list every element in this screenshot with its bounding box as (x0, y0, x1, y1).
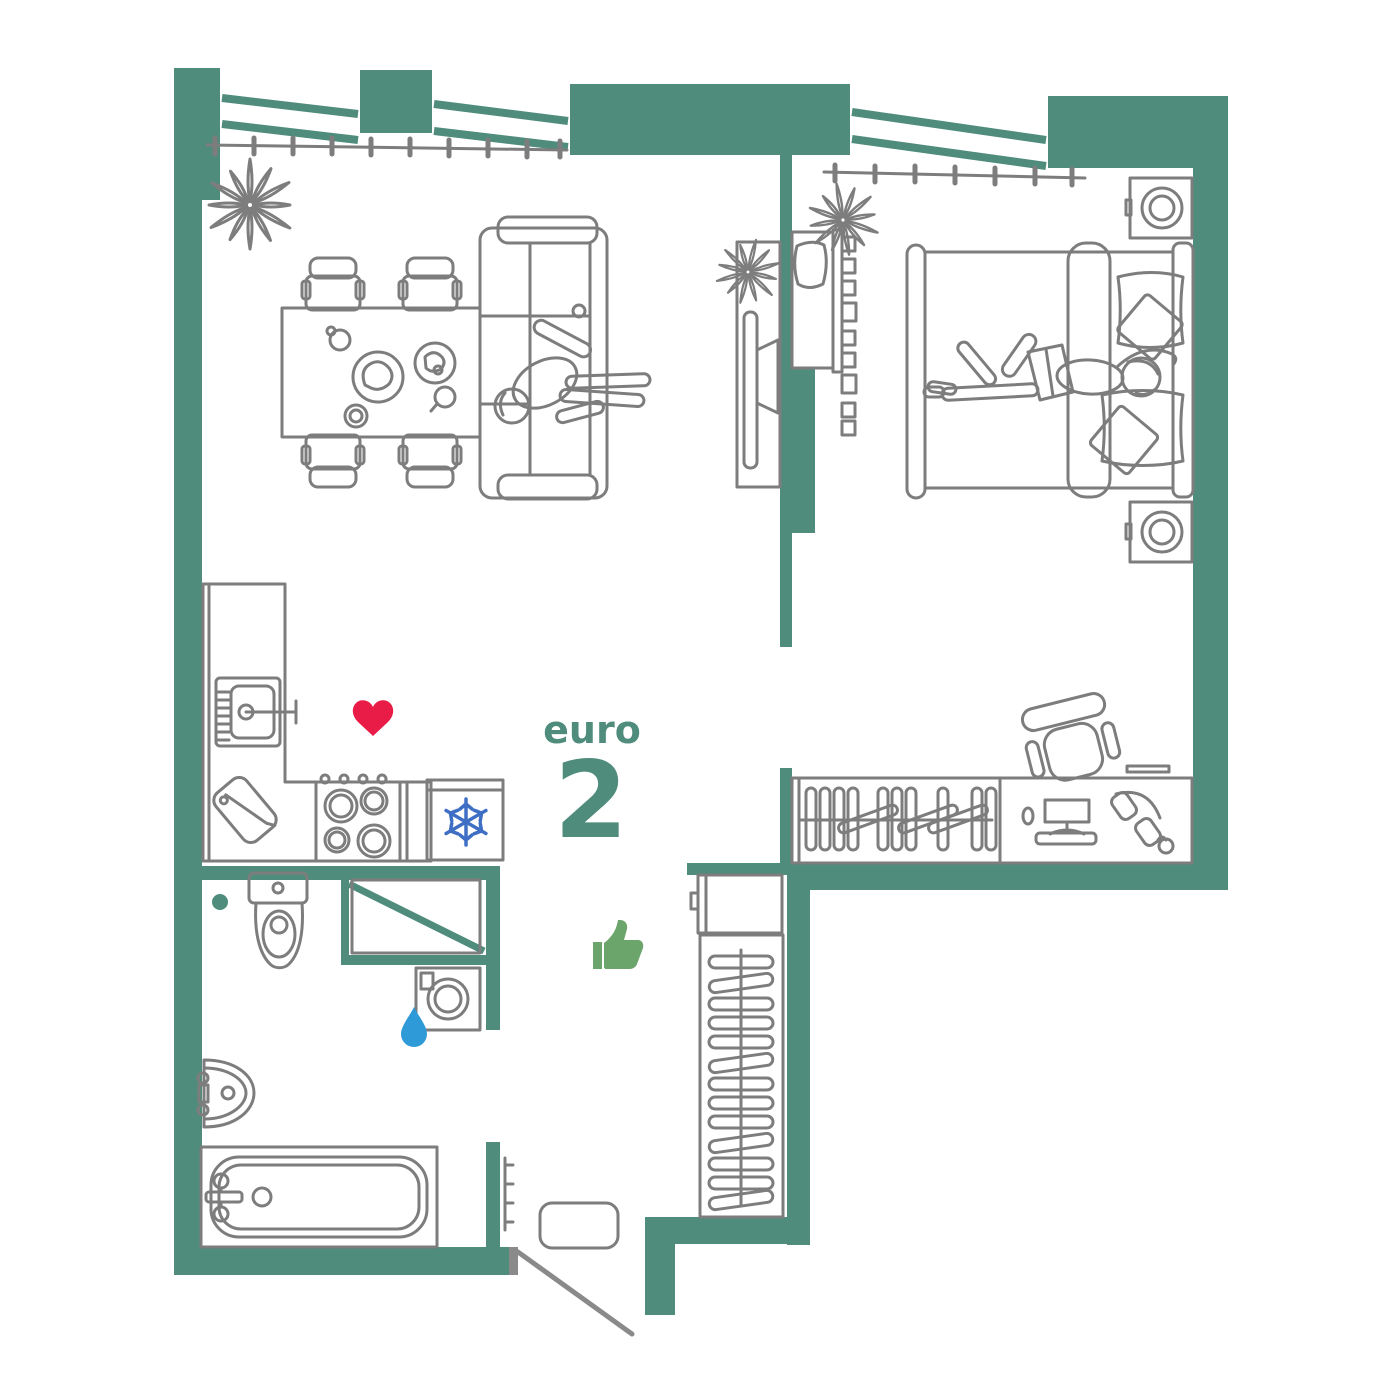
floor-drain-dot (212, 894, 228, 910)
apartment-floorplan: euro 2 (0, 0, 1400, 1400)
wall-hall-right (787, 875, 810, 1245)
thumbs-up-icon (593, 920, 643, 969)
wall-top-middle (570, 84, 850, 155)
dining-table (282, 258, 480, 487)
curtain-rail-bedroom (824, 165, 1085, 185)
bathroom-basin (198, 1060, 254, 1127)
furniture (198, 138, 1193, 1248)
heart-icon (353, 700, 393, 736)
stove (316, 775, 400, 861)
wall-bottom (174, 1247, 517, 1275)
entry-door-swing (518, 1252, 632, 1334)
wall-top-right-pillar (1048, 96, 1208, 168)
windows (222, 98, 1046, 951)
wall-top-left-pillar (174, 68, 220, 200)
wall-shower-left (341, 880, 349, 963)
person-on-sofa (495, 305, 650, 424)
window-living-left (222, 98, 358, 140)
wall-shower-bottom (341, 955, 492, 965)
bathtub (201, 1147, 437, 1247)
computer-monitor (1023, 800, 1096, 844)
wall-right (1193, 96, 1228, 890)
entry-radiator (505, 1158, 513, 1230)
plant-icon (209, 159, 291, 249)
wall-bathroom-east-upper (486, 866, 500, 1030)
sofa (480, 217, 607, 499)
hall-wardrobe (700, 935, 783, 1217)
office-chair (1017, 690, 1123, 787)
headphones (1109, 790, 1173, 853)
plant-icon (712, 233, 785, 310)
floorplan-page: euro 2 (0, 0, 1400, 1400)
door-mat (540, 1203, 618, 1248)
shower-glass-door (349, 884, 484, 951)
water-drop-icon (401, 1007, 427, 1047)
nightstand-top (1126, 178, 1192, 238)
wall-partition-lower (780, 768, 792, 865)
nightstand-bottom (1126, 502, 1192, 562)
window-bedroom (852, 112, 1046, 166)
toilet (249, 873, 307, 968)
wall-bathroom-east-lower (486, 1142, 500, 1275)
wall-bathroom-top (201, 866, 500, 880)
wall-hall-bottom (675, 1217, 810, 1244)
wall-entry-stub (645, 1217, 675, 1315)
hall-cabinet (691, 875, 782, 933)
wall-partition-thick (780, 368, 815, 533)
bedroom-wardrobe (792, 778, 1000, 863)
plan-room-count: 2 (554, 739, 628, 862)
wall-bedroom-bottom (790, 863, 1228, 890)
cutting-board (210, 773, 280, 846)
wall-top-pier (360, 70, 432, 133)
snowflake-icon (443, 799, 489, 845)
desk (1000, 766, 1192, 863)
window-living-right (434, 104, 568, 147)
washing-machine (416, 968, 480, 1030)
wall-hall-top (687, 863, 790, 875)
